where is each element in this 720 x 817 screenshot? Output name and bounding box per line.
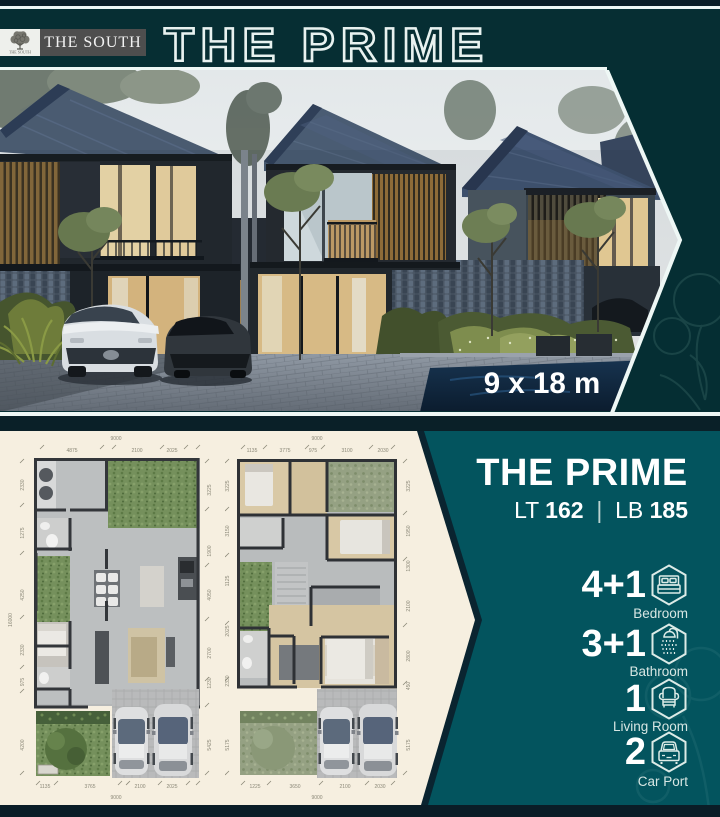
svg-text:3650: 3650 xyxy=(289,784,300,790)
svg-text:1300: 1300 xyxy=(406,560,412,571)
svg-text:9000: 9000 xyxy=(110,436,121,442)
svg-text:2700: 2700 xyxy=(207,647,213,658)
svg-text:3225: 3225 xyxy=(225,480,231,491)
svg-text:5175: 5175 xyxy=(406,739,412,750)
svg-text:1225: 1225 xyxy=(249,784,260,790)
svg-text:16000: 16000 xyxy=(8,613,14,627)
svg-text:1275: 1275 xyxy=(20,527,26,538)
svg-text:3775: 3775 xyxy=(279,448,290,454)
svg-text:1950: 1950 xyxy=(406,525,412,536)
svg-text:2330: 2330 xyxy=(20,479,26,490)
svg-text:5175: 5175 xyxy=(225,739,231,750)
svg-text:2030: 2030 xyxy=(374,784,385,790)
svg-text:1900: 1900 xyxy=(207,545,213,556)
svg-text:975: 975 xyxy=(309,448,318,454)
svg-text:2100: 2100 xyxy=(339,784,350,790)
svg-text:3225: 3225 xyxy=(207,484,213,495)
svg-text:3150: 3150 xyxy=(225,525,231,536)
svg-text:975: 975 xyxy=(20,678,26,687)
svg-text:2330: 2330 xyxy=(225,675,231,686)
svg-text:2100: 2100 xyxy=(406,600,412,611)
svg-text:THE SOUTH: THE SOUTH xyxy=(9,50,31,55)
svg-text:4200: 4200 xyxy=(20,739,26,750)
svg-text:5425: 5425 xyxy=(207,739,213,750)
svg-text:9 x 18 m: 9 x 18 m xyxy=(484,367,600,400)
svg-text:2025: 2025 xyxy=(166,448,177,454)
svg-text:3100: 3100 xyxy=(341,448,352,454)
svg-text:1230: 1230 xyxy=(207,677,213,688)
svg-text:2030: 2030 xyxy=(377,448,388,454)
svg-text:1135: 1135 xyxy=(40,784,51,790)
svg-text:4875: 4875 xyxy=(66,448,77,454)
svg-text:4050: 4050 xyxy=(207,589,213,600)
svg-text:9000: 9000 xyxy=(311,436,322,442)
svg-text:2330: 2330 xyxy=(20,644,26,655)
svg-text:3225: 3225 xyxy=(406,480,412,491)
svg-text:3765: 3765 xyxy=(84,784,95,790)
svg-text:9000: 9000 xyxy=(311,795,322,801)
svg-text:2800: 2800 xyxy=(406,650,412,661)
svg-text:2100: 2100 xyxy=(131,448,142,454)
svg-text:450: 450 xyxy=(406,682,412,691)
svg-text:2100: 2100 xyxy=(134,784,145,790)
svg-text:2025: 2025 xyxy=(166,784,177,790)
svg-text:1135: 1135 xyxy=(247,448,258,454)
svg-text:2025: 2025 xyxy=(225,625,231,636)
svg-text:9000: 9000 xyxy=(110,795,121,801)
svg-text:1125: 1125 xyxy=(225,575,231,586)
svg-text:4250: 4250 xyxy=(20,589,26,600)
